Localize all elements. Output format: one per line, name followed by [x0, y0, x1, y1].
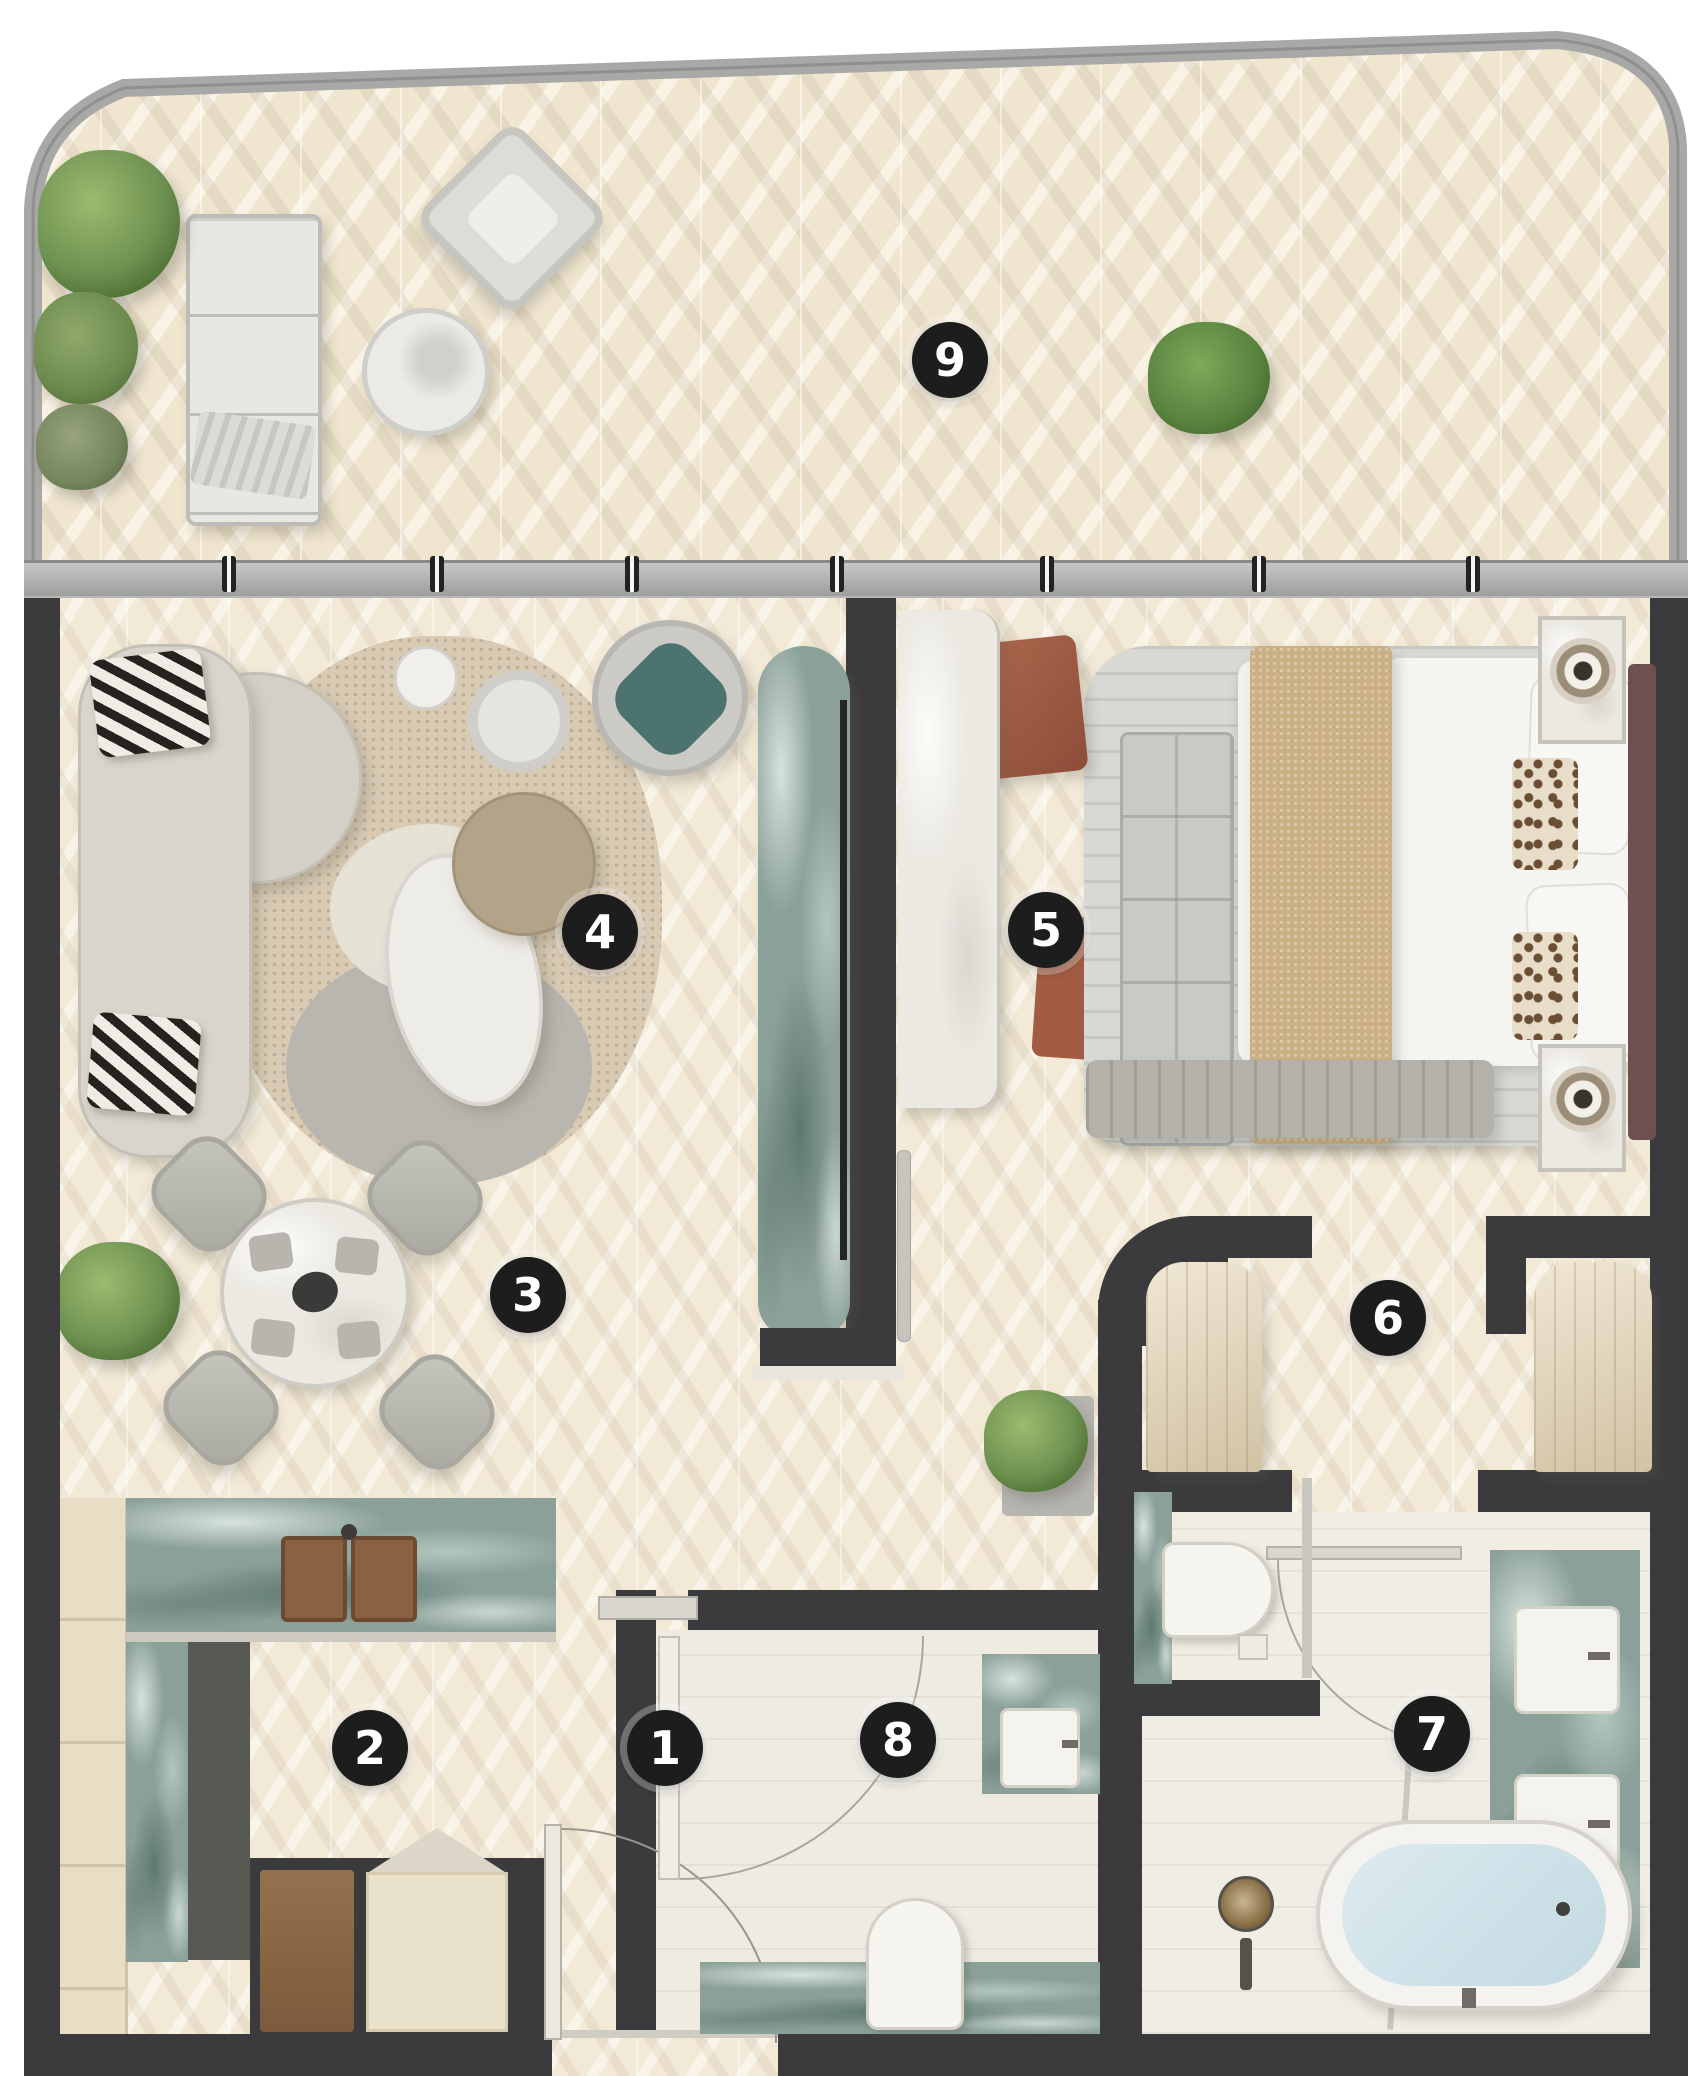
glass-door-clip	[830, 556, 844, 592]
glass-door-clip	[1252, 556, 1266, 592]
side-table-small	[394, 646, 458, 710]
bath7-sink-top	[1514, 1606, 1620, 1714]
closet-wardrobe-left	[1146, 1262, 1262, 1472]
glass-door-clip	[222, 556, 236, 592]
entry-door-leaf	[544, 1824, 562, 2040]
sofa-zebra-pillow-top	[88, 648, 211, 759]
shower-head	[1218, 1876, 1274, 1932]
bath7-sink-bottom-faucet	[1588, 1820, 1610, 1828]
bath8-pocket-door	[598, 1596, 698, 1620]
side-table-large	[468, 670, 570, 772]
shower-handle	[1240, 1938, 1252, 1990]
glass-door-clip	[430, 556, 444, 592]
sofa-zebra-pillow-bottom	[86, 1011, 202, 1116]
dining-plate	[250, 1318, 296, 1359]
toilet-bath8	[866, 1898, 964, 2030]
bathtub-drain	[1556, 1902, 1570, 1916]
wc-glass-partition	[1302, 1478, 1312, 1678]
bed-headboard	[1628, 664, 1656, 1140]
closet-wall-stub	[1486, 1258, 1526, 1334]
bed-accent-pillow-bottom	[1512, 932, 1578, 1040]
bath7-door-glass	[1266, 1546, 1462, 1560]
kitchen-sink-right-basin	[351, 1536, 417, 1622]
bed-foot-bench	[1086, 1060, 1494, 1138]
kitchen-faucet	[341, 1524, 357, 1540]
kitchen-appliance-triangle	[366, 1828, 508, 1874]
media-wall-cap	[760, 1328, 896, 1368]
glass-door-clip	[625, 556, 639, 592]
wc-bottom-wall	[1120, 1680, 1320, 1716]
nightstand-top-lamp	[1550, 638, 1616, 704]
bath8-door-leaf	[658, 1636, 680, 1880]
closet-wardrobe-right	[1534, 1262, 1652, 1472]
exterior-wall-bottom-left	[24, 2034, 552, 2076]
exterior-wall-left	[24, 598, 60, 2076]
balcony-coffee-table	[362, 308, 490, 436]
kitchen-tall-cabinet	[58, 1498, 128, 2036]
kitchen-appliance	[366, 1872, 508, 2032]
dining-plate	[337, 1320, 382, 1360]
kitchen-counter-side	[126, 1642, 188, 1962]
kitchen-sink-left-basin	[281, 1536, 347, 1622]
media-wall-sill	[752, 1366, 904, 1380]
glass-door-band	[24, 560, 1688, 598]
glass-door-clip	[1466, 556, 1480, 592]
media-console-marble	[758, 646, 850, 1338]
toilet-bath7	[1162, 1542, 1274, 1638]
closet-top-wall-right	[1486, 1216, 1652, 1258]
bath8-faucet	[1062, 1740, 1078, 1748]
bedroom-door-handle	[897, 1150, 911, 1342]
floor-plan: 123456789	[0, 0, 1704, 2076]
bed-accent-pillow-top	[1512, 758, 1578, 870]
ottoman-round	[452, 792, 596, 936]
exterior-wall-bottom-right	[778, 2034, 1688, 2076]
dining-plate	[334, 1236, 380, 1276]
closet-top-wall-left	[1190, 1216, 1312, 1258]
bedroom-dresser	[898, 610, 1000, 1108]
wc-flush-button	[1238, 1634, 1268, 1660]
dining-plate	[248, 1231, 295, 1272]
bath8-sink	[1000, 1708, 1080, 1788]
glass-door-clip	[1040, 556, 1054, 592]
bath7-top-wall-right	[1478, 1470, 1652, 1512]
bath8-top-wall	[688, 1590, 1100, 1630]
bathtub-faucet	[1462, 1988, 1476, 2008]
kitchen-brown-cabinet	[260, 1870, 354, 2032]
tv-slit	[840, 700, 847, 1260]
nightstand-bottom-lamp	[1550, 1066, 1616, 1132]
kitchen-lower-cabinet-dark	[188, 1642, 250, 1960]
media-wall	[846, 598, 896, 1368]
bath7-sink-top-faucet	[1588, 1652, 1610, 1660]
